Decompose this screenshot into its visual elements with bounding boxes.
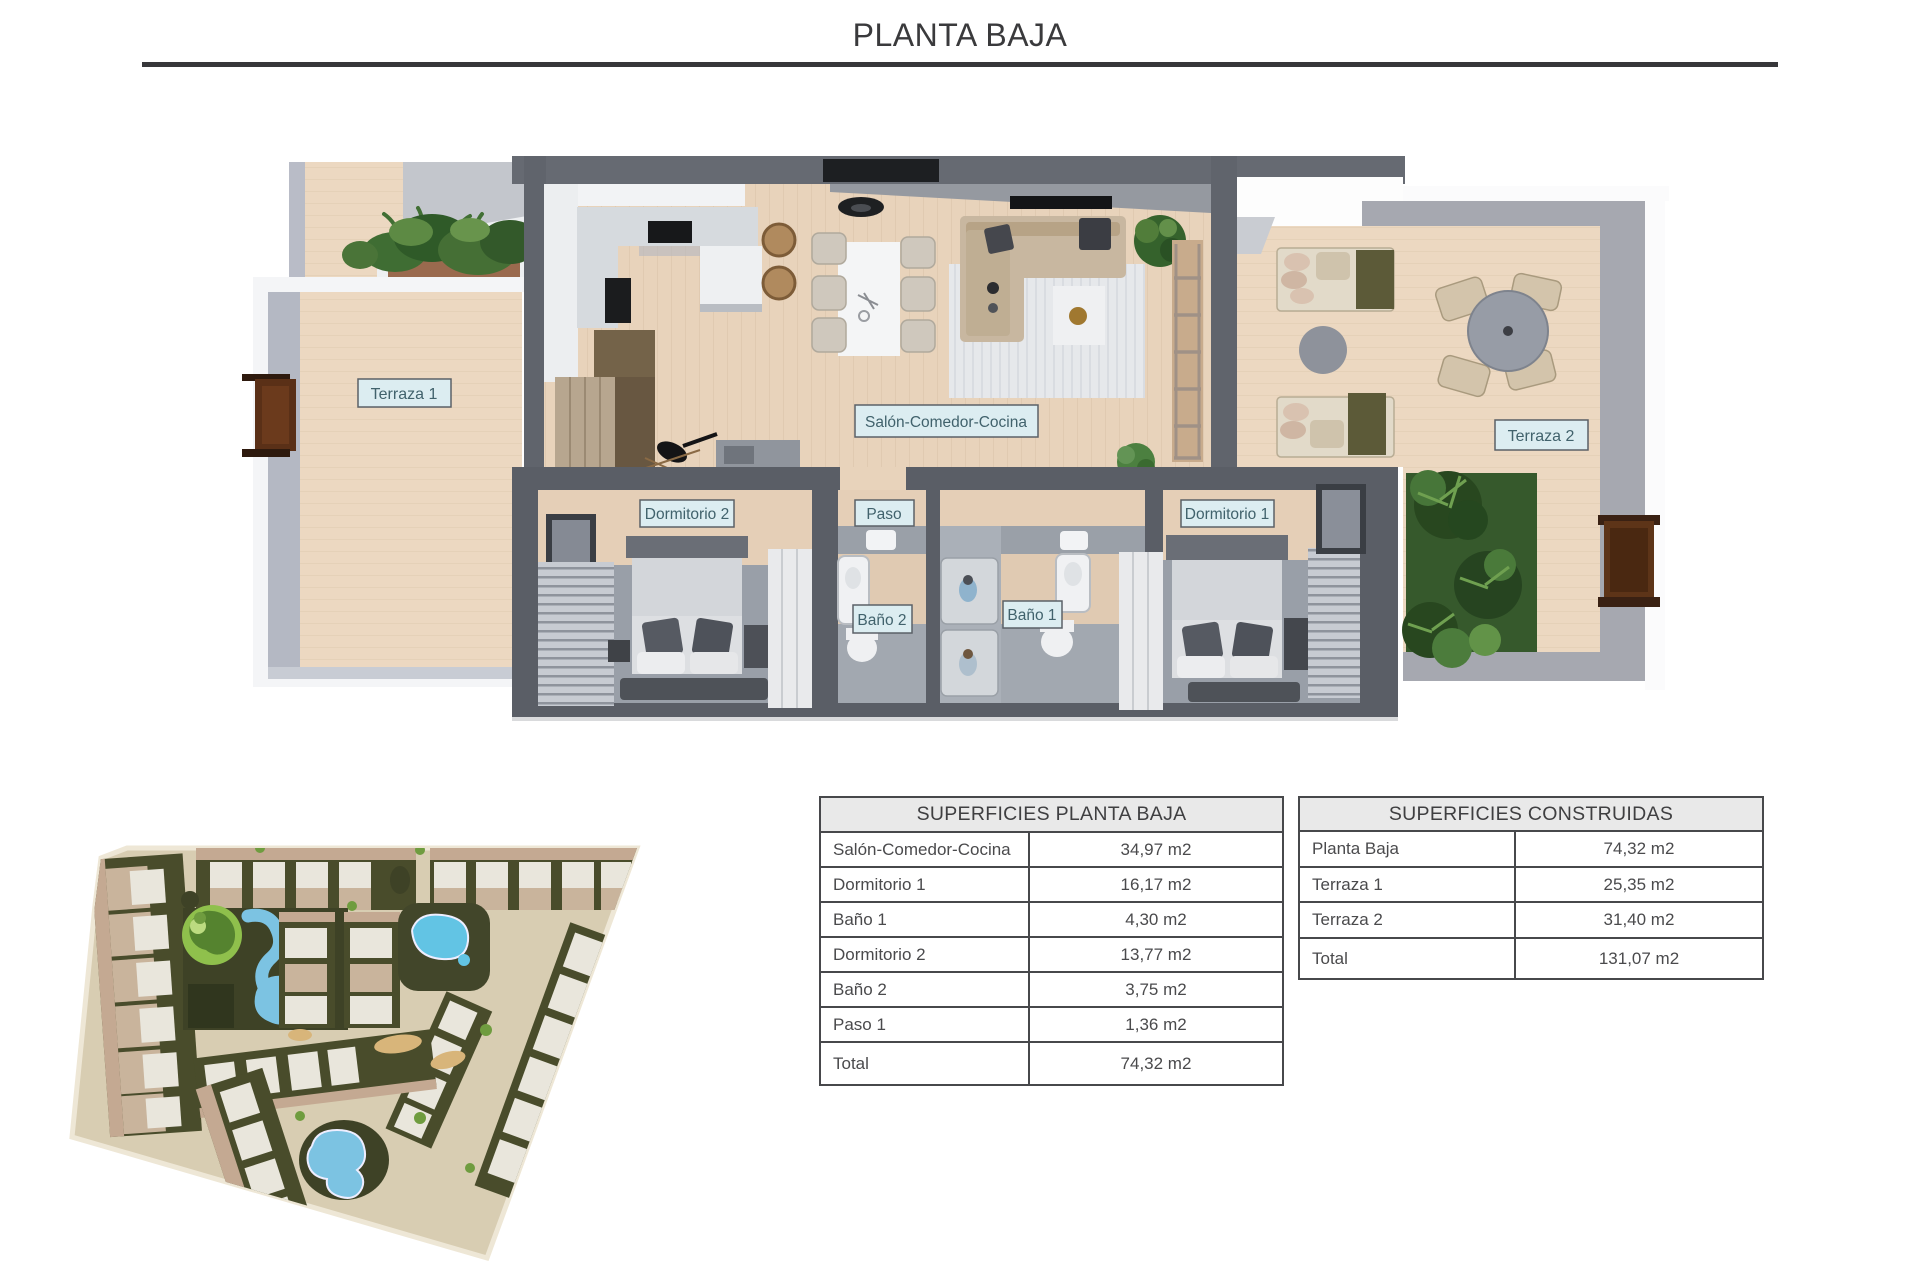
svg-text:Baño 1: Baño 1 xyxy=(1007,607,1056,624)
svg-text:Baño 2: Baño 2 xyxy=(857,612,906,629)
svg-text:Terraza 1: Terraza 1 xyxy=(371,386,438,403)
svg-text:Dormitorio 2: Dormitorio 2 xyxy=(645,506,729,523)
svg-text:Dormitorio 1: Dormitorio 1 xyxy=(1185,506,1269,523)
svg-text:Salón-Comedor-Cocina: Salón-Comedor-Cocina xyxy=(865,414,1027,431)
svg-text:Paso: Paso xyxy=(866,506,901,523)
svg-text:Terraza 2: Terraza 2 xyxy=(1508,428,1575,445)
